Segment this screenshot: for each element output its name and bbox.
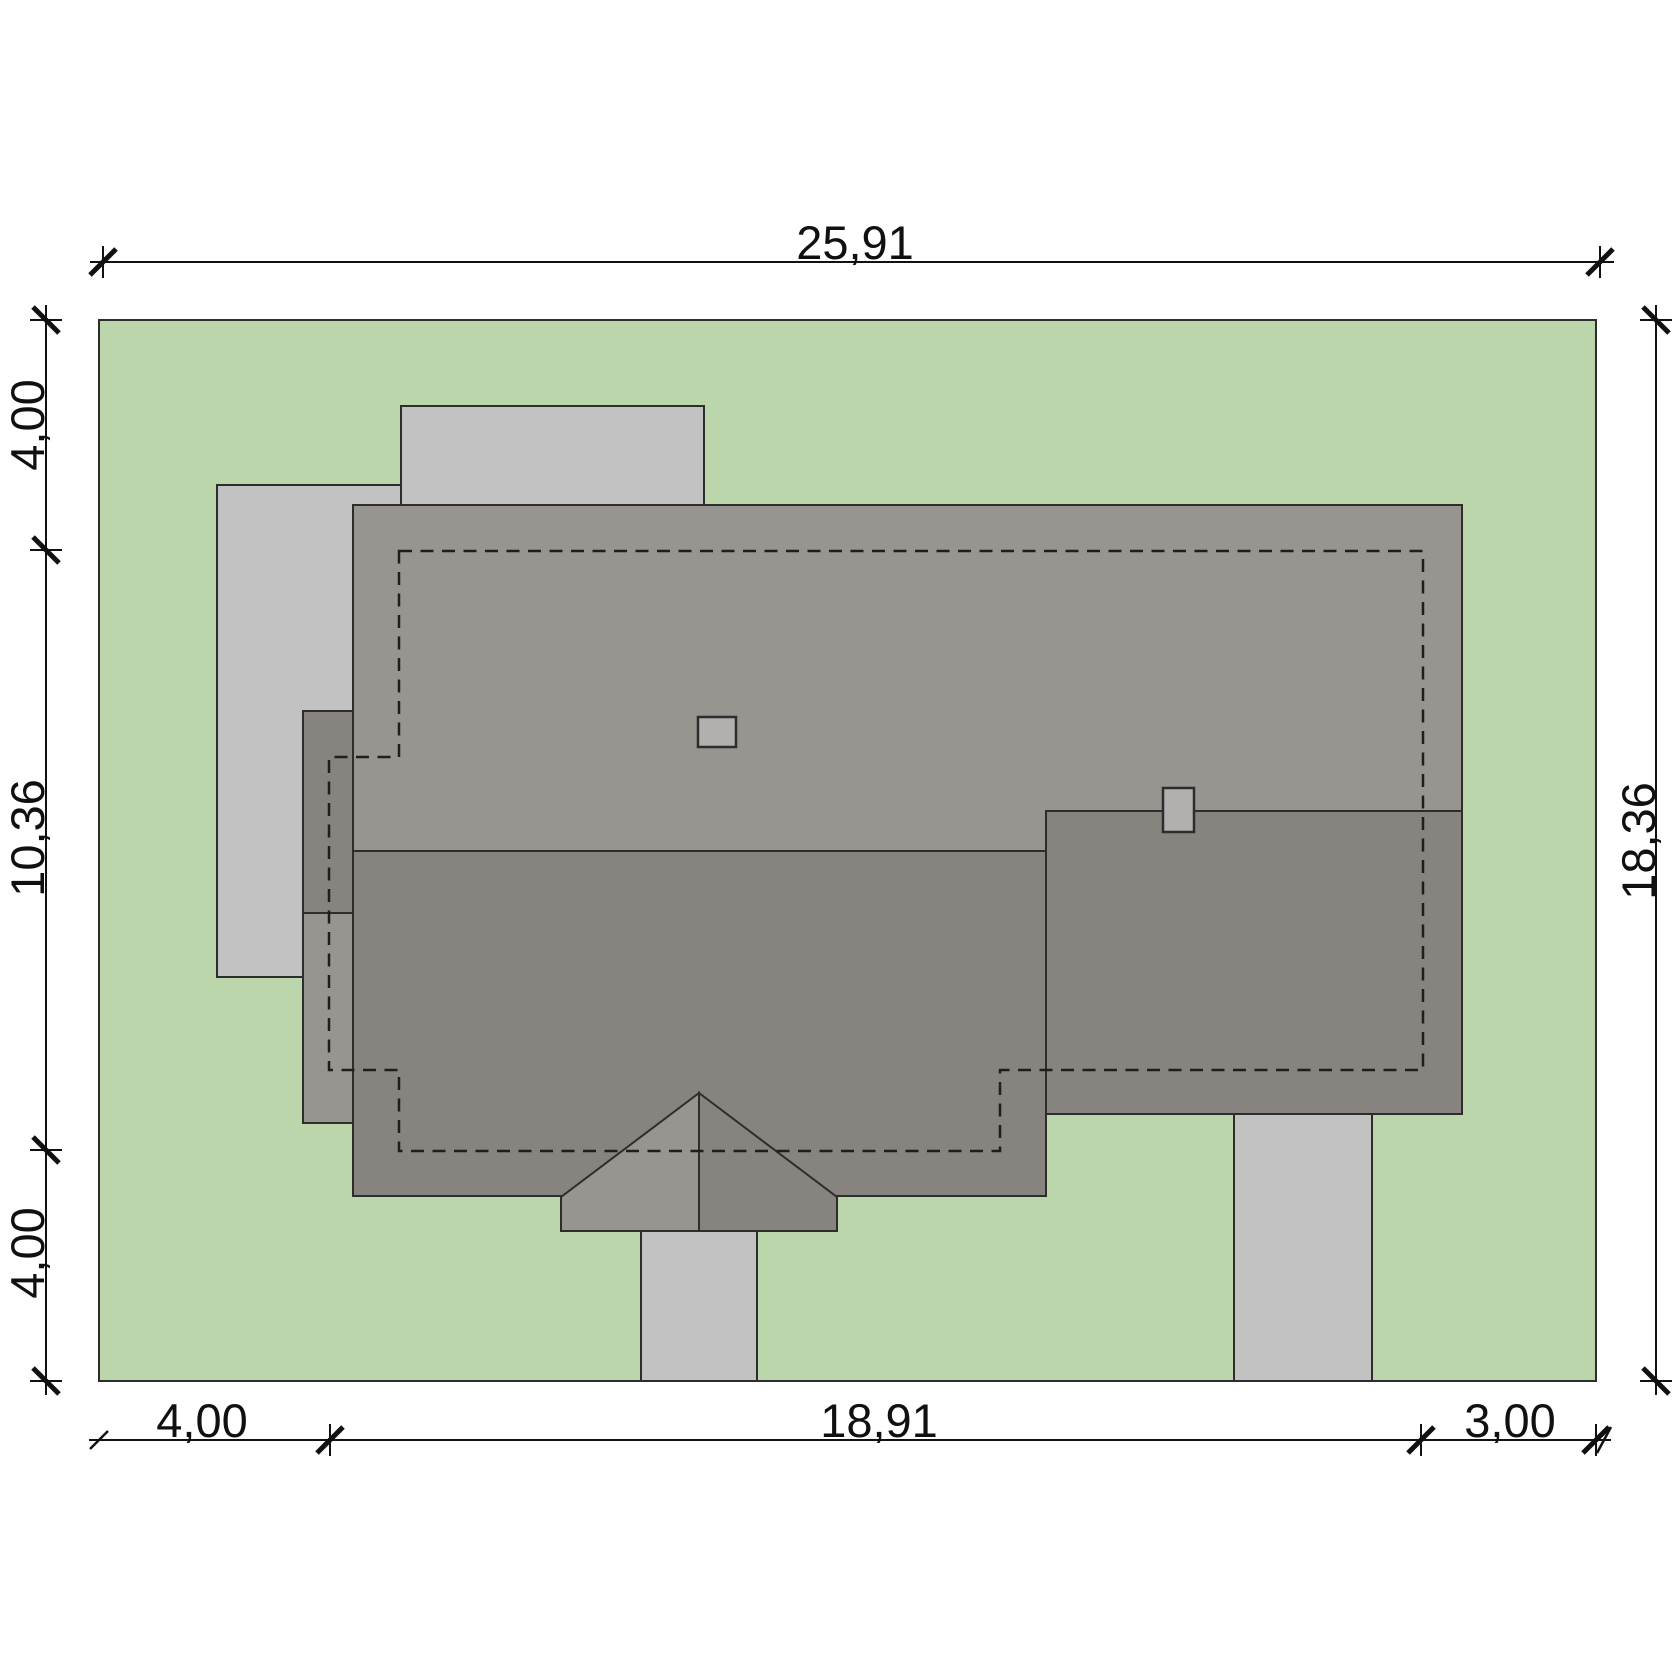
svg-text:18,91: 18,91 [820, 1394, 938, 1447]
svg-text:4,00: 4,00 [1, 1207, 54, 1298]
svg-text:4,00: 4,00 [156, 1394, 247, 1447]
svg-text:10,36: 10,36 [1, 779, 54, 897]
svg-text:18,36: 18,36 [1612, 782, 1665, 900]
svg-text:25,91: 25,91 [796, 216, 914, 269]
svg-text:3,00: 3,00 [1464, 1394, 1555, 1447]
svg-text:4,00: 4,00 [1, 379, 54, 470]
